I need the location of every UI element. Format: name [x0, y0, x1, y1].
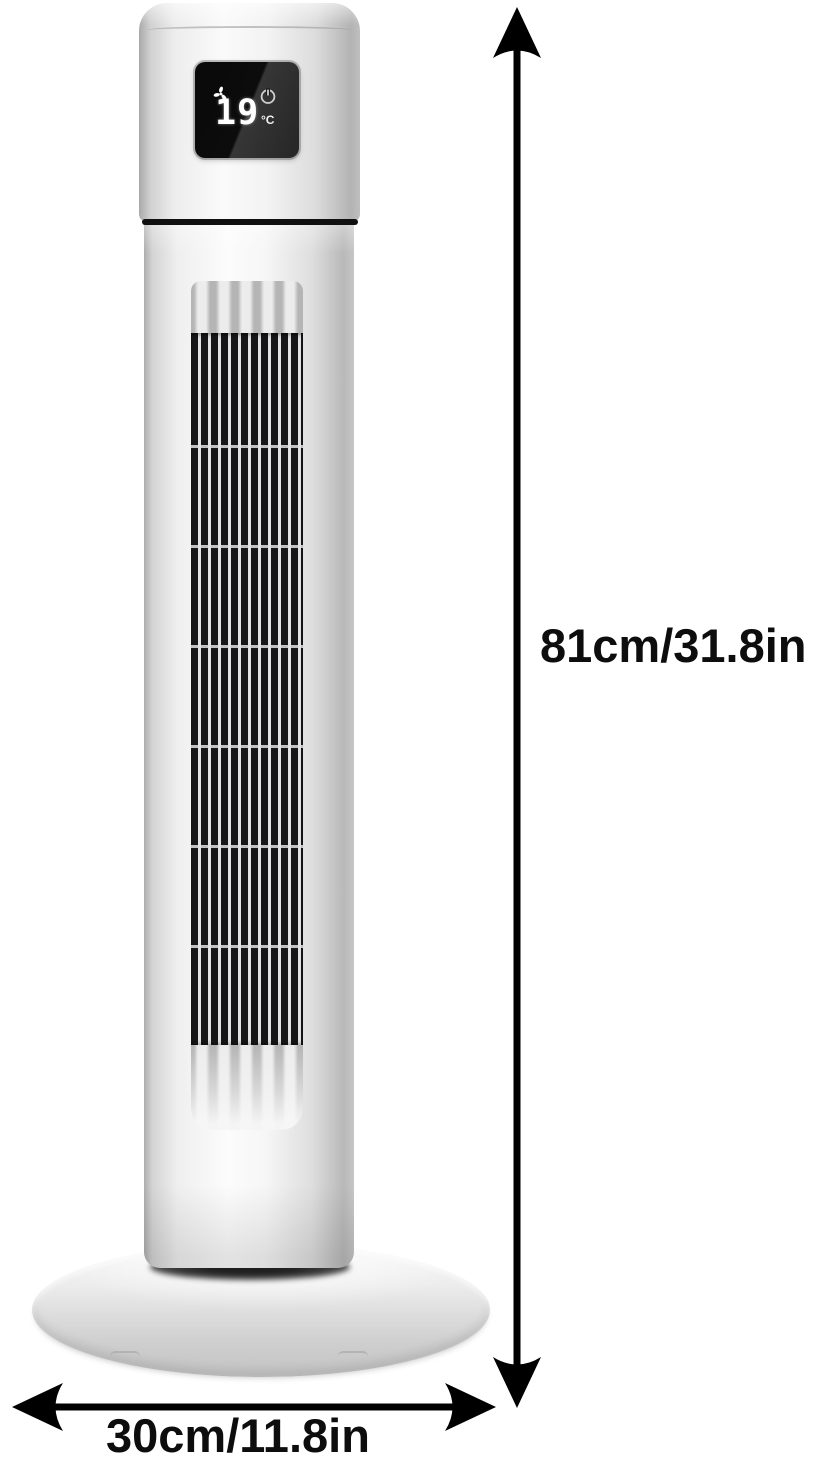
grille-top-ridges — [191, 281, 303, 333]
air-grille — [191, 281, 303, 1130]
dimension-arrows — [0, 0, 829, 1463]
power-icon — [259, 87, 277, 105]
head-seam-line — [147, 26, 352, 34]
base-notch-right — [338, 1351, 368, 1362]
height-dimension-label: 81cm/31.8in — [540, 620, 807, 672]
tower-fan-product-image: 19 °C 81cm/31.8in 30cm/11.8in — [0, 0, 829, 1463]
width-dimension-label: 30cm/11.8in — [106, 1410, 370, 1462]
grille-divider — [191, 945, 303, 948]
grille-divider — [191, 445, 303, 448]
height-arrow — [493, 7, 541, 1408]
led-display: 19 °C — [195, 62, 299, 158]
grille-divider — [191, 745, 303, 748]
grille-divider — [191, 645, 303, 648]
grille-divider — [191, 845, 303, 848]
display-unit: °C — [261, 114, 274, 126]
grille-slots — [191, 333, 303, 1045]
display-temperature: 19 — [215, 96, 259, 131]
head-separator-band — [142, 219, 358, 225]
base-notch-left — [110, 1351, 140, 1362]
grille-bottom-ridges — [191, 1045, 303, 1130]
grille-divider — [191, 545, 303, 548]
